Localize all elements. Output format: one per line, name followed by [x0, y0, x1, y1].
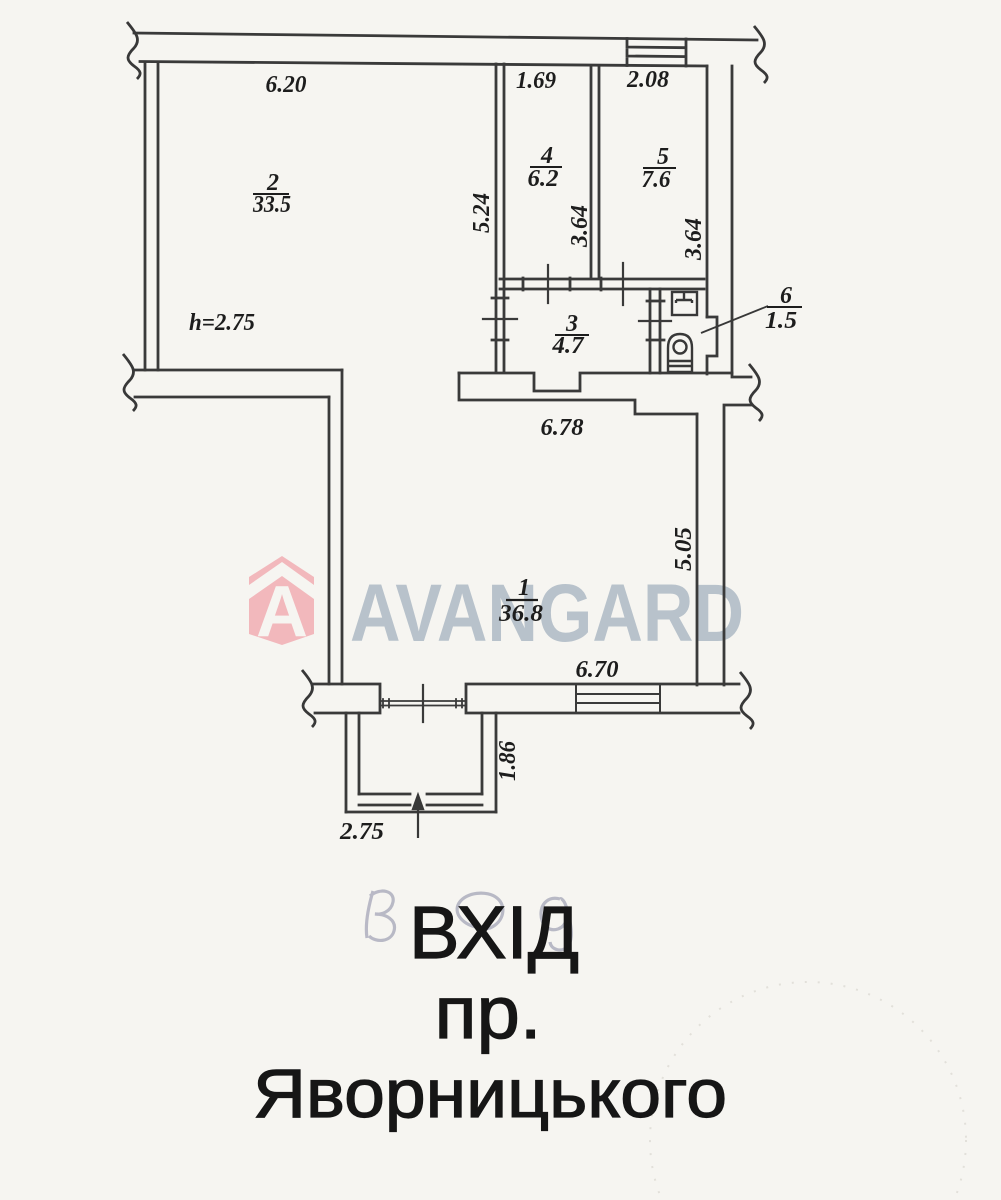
svg-text:2.08: 2.08 — [626, 67, 669, 93]
svg-text:6.78: 6.78 — [541, 415, 584, 441]
svg-text:2.75: 2.75 — [339, 819, 384, 845]
svg-text:3.64: 3.64 — [567, 205, 593, 248]
svg-text:36.8: 36.8 — [498, 601, 543, 627]
svg-text:AVANGARD: AVANGARD — [350, 568, 744, 659]
svg-text:6.20: 6.20 — [266, 72, 307, 98]
svg-text:пр.: пр. — [435, 971, 542, 1054]
svg-text:5.05: 5.05 — [671, 527, 697, 571]
svg-text:1: 1 — [518, 575, 530, 601]
svg-text:6.2: 6.2 — [528, 166, 559, 192]
svg-text:ВХІД: ВХІД — [409, 891, 579, 974]
svg-text:h=2.75: h=2.75 — [189, 310, 255, 336]
svg-text:6: 6 — [780, 283, 792, 309]
svg-text:6.70: 6.70 — [576, 657, 619, 683]
svg-text:33.5: 33.5 — [252, 192, 291, 218]
svg-text:4.7: 4.7 — [551, 333, 584, 359]
svg-text:1.86: 1.86 — [495, 741, 521, 781]
svg-text:7.6: 7.6 — [642, 167, 671, 193]
svg-text:1.69: 1.69 — [516, 68, 556, 94]
svg-text:1.5: 1.5 — [765, 308, 797, 334]
svg-text:A: A — [256, 572, 308, 652]
svg-text:3.64: 3.64 — [681, 218, 707, 261]
svg-text:5.24: 5.24 — [469, 193, 495, 233]
svg-text:Яворницького: Яворницького — [253, 1055, 727, 1132]
